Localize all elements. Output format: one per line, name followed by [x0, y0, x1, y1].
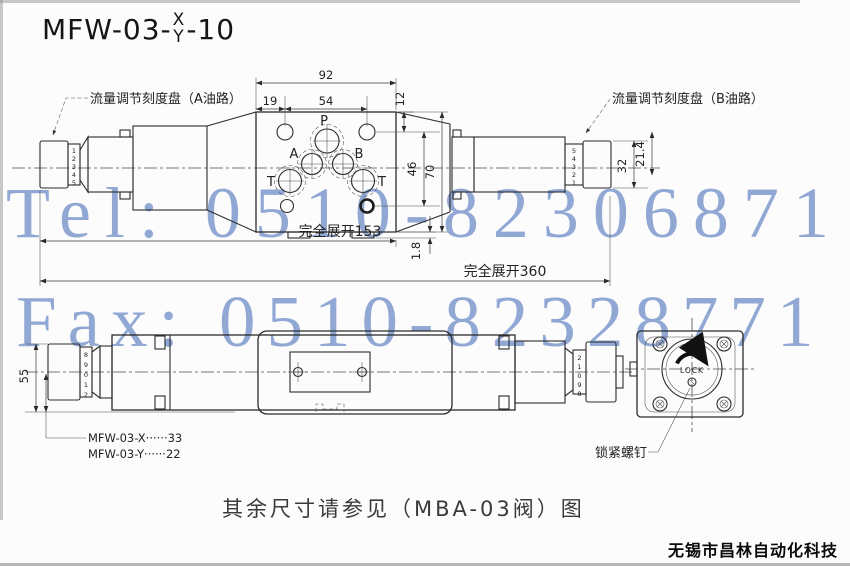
end-view: LOCK 锁紧螺钉 [595, 318, 757, 461]
reference-note: 其余尺寸请参见（MBA-03阀）图 [222, 493, 585, 523]
variant-leader [46, 412, 86, 438]
port-tr-label: T [377, 175, 386, 190]
svg-text:4: 4 [572, 155, 576, 163]
svg-text:4: 4 [72, 171, 76, 179]
svg-text:2: 2 [577, 354, 581, 362]
bottom-view-dimensions: 55 MFW-03-X······33 MFW-03-Y······22 [17, 344, 235, 461]
dial-a-callout: 流量调节刻度盘（A油路） [90, 91, 242, 107]
drawing-sheet: Tel: 0510-82306871 Fax: 0510-82328771 MF… [0, 0, 850, 566]
clamp-lug [499, 396, 509, 409]
clamp-lug [499, 336, 509, 349]
dim-21-4: 21.4 [633, 141, 647, 167]
dim-54: 54 [319, 94, 334, 108]
dim-extend-360: 完全展开360 [464, 263, 547, 280]
svg-text:9: 9 [84, 361, 88, 369]
svg-text:0: 0 [577, 372, 581, 380]
dial-b-digits: 5 4 3 2 1 [572, 147, 576, 187]
model-suffix: -10 [186, 13, 235, 46]
dim-extend-153: 完全展开153 [299, 223, 382, 240]
dial-b-leader [586, 99, 610, 133]
mount-hole [277, 124, 293, 140]
svg-text:0: 0 [84, 371, 88, 379]
svg-text:5: 5 [572, 147, 576, 155]
lock-text: LOCK [680, 366, 704, 375]
port-b-label: B [355, 147, 364, 162]
scan-edge-left [0, 0, 3, 520]
svg-text:2: 2 [84, 391, 88, 399]
knob-cone-a [80, 137, 88, 192]
lock-screw-label: 锁紧螺钉 [595, 445, 647, 461]
scan-edge-top [0, 0, 800, 3]
dial-a-digits: 1 2 3 4 5 [72, 147, 76, 187]
stem-b [474, 137, 565, 192]
clamp-lug [155, 336, 165, 349]
model-title: MFW-03- X Y -10 [42, 12, 235, 46]
stem-lug [120, 130, 130, 137]
svg-text:1: 1 [84, 381, 88, 389]
knurled-knob-a [40, 141, 68, 188]
taper-edge [207, 112, 256, 126]
technical-drawing: 1 2 3 4 5 [0, 0, 850, 566]
model-variant-y: Y [173, 29, 184, 46]
knurled-knob-b [583, 141, 611, 188]
mount-hole [359, 124, 375, 140]
valve-body [112, 335, 515, 410]
dim-variant-y: MFW-03-Y······22 [88, 447, 181, 461]
bottom-view: 8 9 0 1 2 2 [17, 331, 632, 461]
port-a-label: A [290, 147, 299, 162]
svg-text:3: 3 [572, 163, 576, 171]
model-prefix: MFW-03- [42, 13, 172, 46]
svg-text:1: 1 [72, 147, 76, 155]
rotation-arrow [677, 354, 705, 364]
model-variant-fraction: X Y [173, 12, 186, 46]
dim-46: 46 [405, 162, 419, 177]
company-name: 无锡市昌林自动化科技 [668, 537, 838, 561]
pilot-hole-dark [361, 200, 374, 213]
bottom-left-dial-digits: 8 9 0 1 2 [84, 351, 88, 399]
stem-lug [120, 192, 130, 199]
svg-text:1: 1 [572, 179, 576, 187]
dim-19: 19 [263, 94, 278, 108]
center-block [258, 331, 452, 414]
dim-1-8: 1.8 [409, 242, 423, 260]
dial-b-callout: 流量调节刻度盘（B油路） [612, 91, 764, 107]
bottom-notch [316, 404, 344, 412]
dial-a-leader [53, 98, 88, 135]
dim-92: 92 [319, 68, 334, 82]
port-p-label: P [320, 114, 328, 129]
clamp-lug [155, 396, 165, 409]
dim-variant-x: MFW-03-X······33 [88, 431, 182, 445]
pilot-hole [281, 200, 294, 213]
dim-70: 70 [423, 165, 437, 180]
port-tl-label: T [266, 175, 275, 190]
svg-text:1: 1 [577, 363, 581, 371]
svg-text:8: 8 [577, 390, 581, 398]
svg-text:2: 2 [572, 171, 576, 179]
taper-edge [207, 210, 256, 232]
top-view: 1 2 3 4 5 [12, 68, 764, 286]
bottom-right-dial-digits: 2 1 0 9 8 [577, 354, 581, 398]
dim-32: 32 [615, 159, 629, 174]
svg-text:8: 8 [84, 351, 88, 359]
svg-text:9: 9 [577, 381, 581, 389]
dim-55: 55 [17, 369, 31, 384]
svg-text:5: 5 [72, 179, 76, 187]
stem-a [88, 137, 133, 192]
dim-12: 12 [393, 92, 407, 107]
collar-b [452, 137, 474, 192]
svg-text:2: 2 [72, 155, 76, 163]
svg-text:3: 3 [72, 163, 76, 171]
collar-lug [453, 192, 461, 199]
collar-lug [453, 130, 461, 137]
